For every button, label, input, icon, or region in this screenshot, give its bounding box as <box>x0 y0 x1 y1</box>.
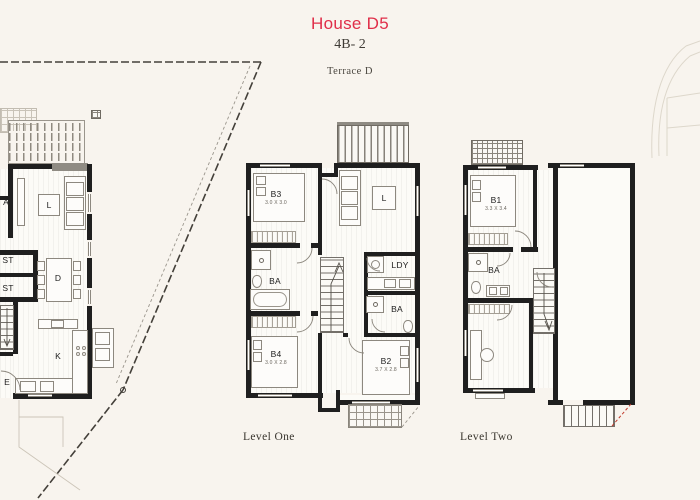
sofa-cushion <box>341 206 358 220</box>
wall-segment <box>87 258 92 288</box>
chair <box>73 289 81 299</box>
window <box>473 389 503 392</box>
wall-segment <box>521 247 538 252</box>
plan-graphic <box>373 302 378 307</box>
fireplace-box <box>95 348 110 361</box>
level-one-deck <box>337 125 409 163</box>
staircase <box>320 257 344 333</box>
wall-segment <box>337 163 420 168</box>
staircase <box>0 305 14 350</box>
linen-cupboard <box>251 316 296 328</box>
window <box>247 340 250 370</box>
wall-segment <box>318 408 340 412</box>
b2-label: B2 <box>366 356 406 366</box>
wall-segment <box>548 400 563 405</box>
wall-segment <box>251 243 300 248</box>
wall-segment <box>343 333 348 337</box>
cooktop-burner <box>76 352 80 356</box>
boundary-peg <box>121 388 126 393</box>
wall-segment <box>311 311 318 316</box>
basin <box>500 287 508 295</box>
sink <box>20 381 36 392</box>
staircase <box>533 268 555 334</box>
awning-shade <box>52 163 88 171</box>
b3-dim: 3.0 X 3.0 <box>258 200 294 206</box>
pillow <box>400 346 409 356</box>
b4-dim: 3.0 X 2.8 <box>258 360 294 366</box>
wall-segment <box>533 170 537 250</box>
wall-segment <box>318 177 322 255</box>
wall-segment <box>364 291 415 295</box>
sink <box>40 381 54 392</box>
living-label-box: L <box>372 186 396 210</box>
living-label: L <box>382 193 387 203</box>
site-bath-label: A <box>1 197 11 207</box>
site-entry-label: E <box>1 377 13 387</box>
wall-segment <box>630 163 635 405</box>
wardrobe <box>468 233 508 245</box>
cooktop-burner <box>76 346 80 350</box>
porch-paving <box>348 404 402 428</box>
sofa-cushion <box>66 212 84 226</box>
linen-cupboard <box>468 304 510 314</box>
laundry-label: LDY <box>383 260 417 270</box>
chair <box>480 348 494 362</box>
wall-segment <box>468 247 513 252</box>
boundary-line <box>38 390 123 498</box>
window <box>88 242 91 256</box>
kitchen-bench-side <box>72 330 88 394</box>
window <box>416 348 419 382</box>
bath-label: BA <box>386 304 408 314</box>
bath-label: BA <box>264 276 286 286</box>
b1-label: B1 <box>478 195 514 205</box>
fireplace-box <box>95 332 110 345</box>
site-store-label: ST <box>1 283 15 293</box>
washer-drum <box>371 260 380 269</box>
porch-dash <box>402 406 419 427</box>
b1-dim: 3.3 X 3.4 <box>478 206 514 212</box>
site-store-label: ST <box>1 255 15 265</box>
deck-edge <box>337 122 409 125</box>
site-deck <box>8 120 85 164</box>
chair <box>73 261 81 271</box>
laundry-tub <box>399 279 411 288</box>
sheet-subtitle: 4B- 2 <box>0 37 700 53</box>
window <box>28 394 52 397</box>
window <box>464 185 467 215</box>
plan-name: Terrace D <box>0 66 700 77</box>
wall-segment <box>311 243 318 248</box>
chair <box>37 275 45 285</box>
living-label: L <box>47 200 52 210</box>
window <box>478 166 506 169</box>
living-label-box: L <box>38 194 60 216</box>
cooktop-burner <box>82 352 86 356</box>
setback-line <box>116 66 250 384</box>
site-kitchen-label: K <box>50 351 66 361</box>
wall-segment <box>0 273 36 277</box>
chair <box>73 275 81 285</box>
deck-post <box>91 110 101 119</box>
window <box>464 330 467 356</box>
external-stairs <box>563 405 615 427</box>
sofa-cushion <box>66 182 84 196</box>
window <box>88 194 91 212</box>
cooktop-burner <box>82 346 86 350</box>
chair <box>37 289 45 299</box>
level-one-caption: Level One <box>243 431 295 443</box>
window <box>88 290 91 304</box>
toilet <box>252 275 262 288</box>
chair <box>37 261 45 271</box>
pillow <box>256 176 266 185</box>
site-dining-label: D <box>50 273 66 283</box>
wall-segment <box>87 164 92 192</box>
wall-segment <box>0 352 13 356</box>
window <box>560 164 584 167</box>
wall-segment <box>87 306 92 330</box>
toilet <box>403 320 413 333</box>
sofa-cushion <box>341 176 358 190</box>
level-two-caption: Level Two <box>460 431 513 443</box>
pillow <box>472 180 481 190</box>
wall-segment <box>87 214 92 240</box>
basin <box>489 287 497 295</box>
b4-label: B4 <box>258 349 294 359</box>
wardrobe <box>251 231 296 243</box>
wall-segment <box>463 298 535 303</box>
floor-plan-sheet: House D5 4B- 2 Terrace D <box>0 0 700 500</box>
sheet-title: House D5 <box>0 14 700 34</box>
driveway-outline <box>19 400 80 490</box>
b3-label: B3 <box>258 189 294 199</box>
sofa-cushion <box>66 197 84 211</box>
wall-segment <box>318 333 322 393</box>
laundry-tub <box>384 279 396 288</box>
b2-dim: 3.7 X 2.8 <box>366 367 406 373</box>
balcony <box>471 140 523 165</box>
window <box>416 186 419 216</box>
wall-segment <box>364 333 420 337</box>
window <box>247 190 250 216</box>
bathtub-inner <box>253 292 287 307</box>
window <box>260 164 290 167</box>
toilet <box>471 281 481 294</box>
boundary-line <box>123 62 261 390</box>
sofa-cushion <box>341 191 358 205</box>
door-step <box>475 393 505 399</box>
plan-graphic <box>476 260 481 265</box>
kitchen-bench-divider <box>51 320 64 328</box>
plan-graphic <box>259 258 264 263</box>
tv-unit <box>17 178 25 226</box>
level-two-void <box>558 168 630 400</box>
window <box>258 394 292 397</box>
bath-label: BA <box>482 265 506 275</box>
adjacent-plan-ghost <box>652 41 700 158</box>
